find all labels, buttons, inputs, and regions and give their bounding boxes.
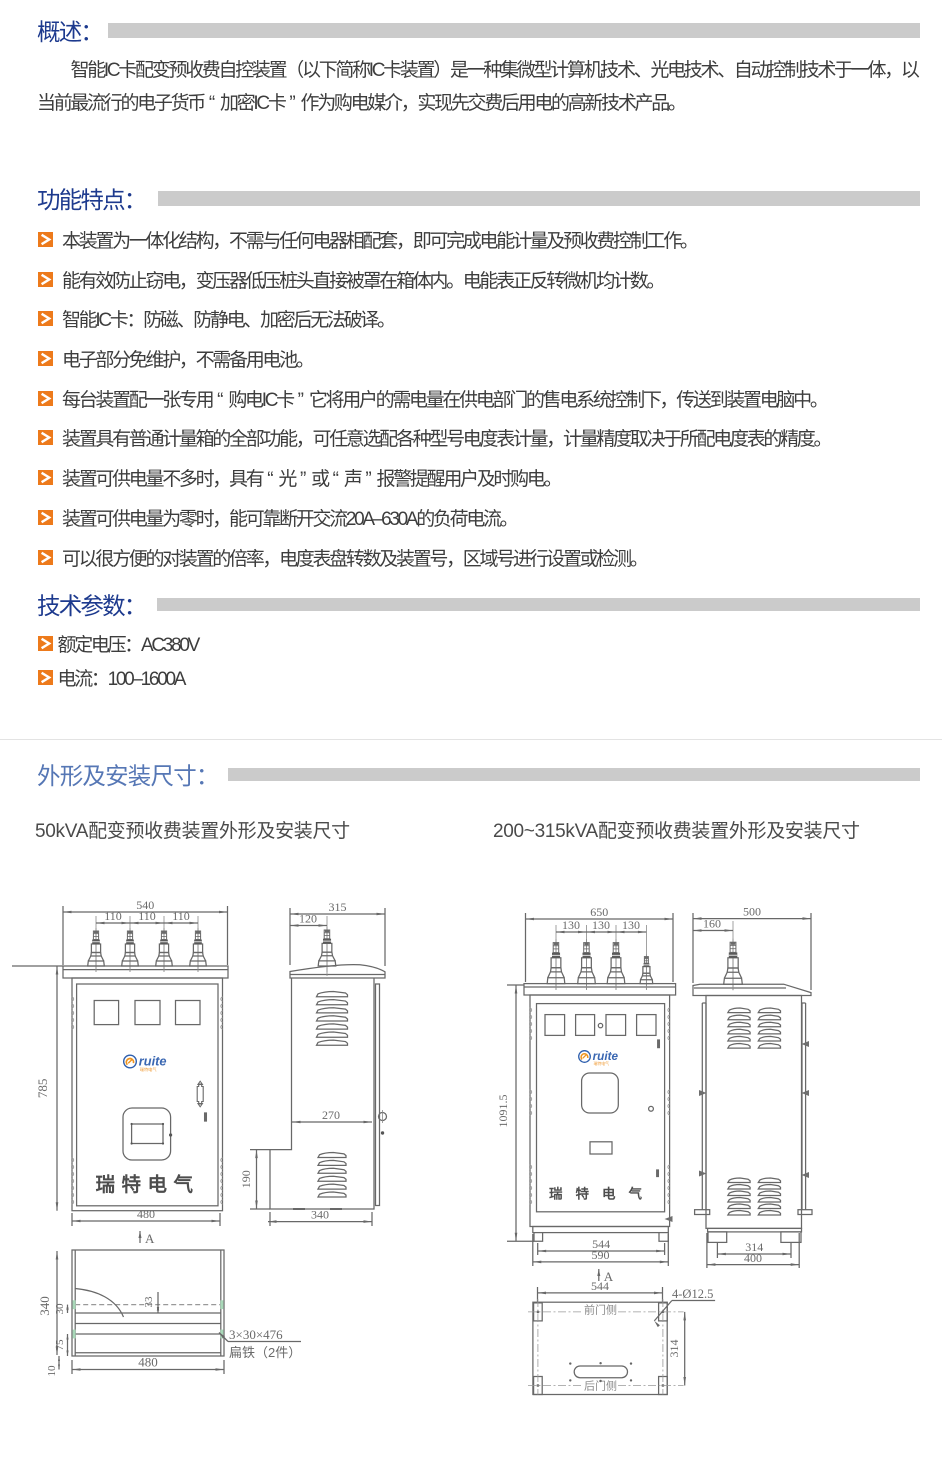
svg-text:瑞特电气: 瑞特电气 <box>594 1061 610 1066</box>
svg-text:3×30×476: 3×30×476 <box>229 1327 283 1342</box>
svg-text:瑞特电气: 瑞特电气 <box>140 1066 158 1072</box>
svg-text:130: 130 <box>622 918 640 932</box>
svg-text:扁铁（2件）: 扁铁（2件） <box>229 1345 301 1360</box>
svg-text:110: 110 <box>138 909 156 923</box>
svg-text:190: 190 <box>239 1170 253 1188</box>
svg-text:130: 130 <box>592 918 610 932</box>
svg-text:650: 650 <box>590 905 608 919</box>
svg-text:400: 400 <box>744 1251 762 1265</box>
svg-text:480: 480 <box>138 1355 158 1370</box>
svg-text:314: 314 <box>667 1340 681 1358</box>
svg-text:瑞特电气: 瑞特电气 <box>549 1186 655 1202</box>
svg-text:500: 500 <box>743 905 761 919</box>
svg-text:590: 590 <box>592 1248 610 1262</box>
svg-text:33: 33 <box>143 1296 155 1308</box>
svg-text:10: 10 <box>46 1365 58 1377</box>
svg-text:315: 315 <box>329 900 347 914</box>
svg-text:130: 130 <box>562 918 580 932</box>
svg-text:A: A <box>145 1231 155 1246</box>
svg-text:270: 270 <box>322 1108 340 1122</box>
svg-text:前门侧: 前门侧 <box>584 1303 617 1317</box>
svg-text:4-Ø12.5: 4-Ø12.5 <box>672 1287 713 1301</box>
svg-text:75: 75 <box>54 1339 66 1351</box>
svg-text:1091.5: 1091.5 <box>496 1095 510 1128</box>
svg-text:30: 30 <box>54 1303 66 1315</box>
svg-text:瑞特电气: 瑞特电气 <box>95 1173 199 1196</box>
svg-text:544: 544 <box>591 1279 609 1293</box>
svg-text:120: 120 <box>299 912 317 926</box>
svg-text:340: 340 <box>311 1208 329 1222</box>
svg-text:785: 785 <box>35 1079 50 1099</box>
svg-text:480: 480 <box>137 1207 155 1221</box>
svg-text:340: 340 <box>37 1296 52 1316</box>
svg-text:110: 110 <box>104 909 122 923</box>
svg-text:160: 160 <box>703 917 721 931</box>
svg-text:110: 110 <box>172 909 190 923</box>
